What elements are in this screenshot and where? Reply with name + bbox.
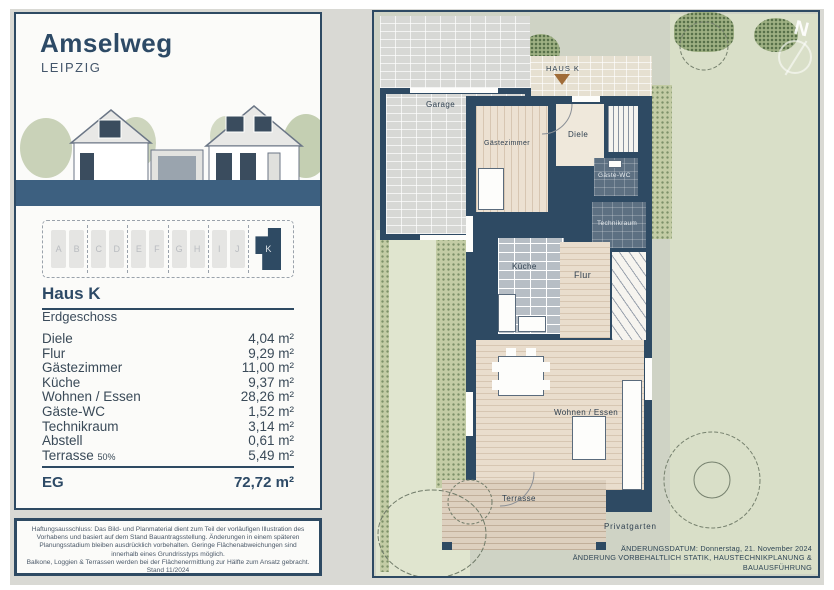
info-panel: Amselweg LEIPZIG A B C bbox=[14, 12, 322, 510]
room-row: Diele4,04 m² bbox=[42, 332, 294, 347]
total-value: 72,72 m² bbox=[234, 474, 294, 491]
floor-label: Erdgeschoss bbox=[42, 309, 117, 324]
unit-selector: A B C D E F G H I J K bbox=[42, 220, 294, 278]
unit-d[interactable]: D bbox=[109, 230, 124, 268]
unit-pair-ab: A B bbox=[48, 225, 88, 273]
unit-a[interactable]: A bbox=[51, 230, 66, 268]
disclaimer-box: Haftungsausschluss: Das Bild- und Planma… bbox=[14, 518, 322, 576]
room-row: Technikraum3,14 m² bbox=[42, 420, 294, 435]
unit-k-selected[interactable]: K bbox=[255, 228, 281, 270]
unit-g[interactable]: G bbox=[172, 230, 187, 268]
room-row: Flur9,29 m² bbox=[42, 347, 294, 362]
site-plan: Garage HAUS K Gästezimmer Diele Gäste-WC… bbox=[372, 10, 820, 578]
room-area-list: Diele4,04 m² Flur9,29 m² Gästezimmer11,0… bbox=[42, 332, 294, 464]
house-elevation-illustration bbox=[16, 98, 320, 208]
landscape-overlay bbox=[374, 12, 820, 578]
room-row: Küche9,37 m² bbox=[42, 376, 294, 391]
unit-pair-ij: I J bbox=[209, 225, 249, 273]
disclaimer-text-1: Haftungsausschluss: Das Bild- und Planma… bbox=[25, 526, 311, 559]
total-label: EG bbox=[42, 474, 64, 491]
unit-f[interactable]: F bbox=[149, 230, 164, 268]
room-row: Terrasse 50% 5,49 m² bbox=[42, 449, 294, 465]
unit-pair-k: K bbox=[249, 225, 288, 273]
plan-footer: ÄNDERUNGSDATUM: Donnerstag, 21. November… bbox=[512, 544, 812, 573]
unit-e[interactable]: E bbox=[131, 230, 146, 268]
unit-h[interactable]: H bbox=[190, 230, 205, 268]
room-row: Wohnen / Essen28,26 m² bbox=[42, 390, 294, 405]
unit-c[interactable]: C bbox=[91, 230, 106, 268]
unit-pair-cd: C D bbox=[88, 225, 128, 273]
unit-b[interactable]: B bbox=[69, 230, 84, 268]
total-area-row: EG 72,72 m² bbox=[42, 466, 294, 491]
unit-pair-ef: E F bbox=[128, 225, 168, 273]
project-city: LEIPZIG bbox=[41, 60, 101, 75]
unit-j[interactable]: J bbox=[230, 230, 245, 268]
change-note: ÄNDERUNG VORBEHALTLICH STATIK, HAUSTECHN… bbox=[512, 553, 812, 572]
unit-i[interactable]: I bbox=[212, 230, 227, 268]
unit-pair-gh: G H bbox=[169, 225, 209, 273]
unit-title: Haus K bbox=[42, 284, 294, 310]
disclaimer-text-2: Balkone, Loggien & Terrassen werden bei … bbox=[25, 559, 311, 575]
room-row: Abstell0,61 m² bbox=[42, 434, 294, 449]
room-row: Gästezimmer11,00 m² bbox=[42, 361, 294, 376]
room-row: Gäste-WC1,52 m² bbox=[42, 405, 294, 420]
change-date: ÄNDERUNGSDATUM: Donnerstag, 21. November… bbox=[512, 544, 812, 554]
project-title: Amselweg bbox=[40, 28, 173, 59]
